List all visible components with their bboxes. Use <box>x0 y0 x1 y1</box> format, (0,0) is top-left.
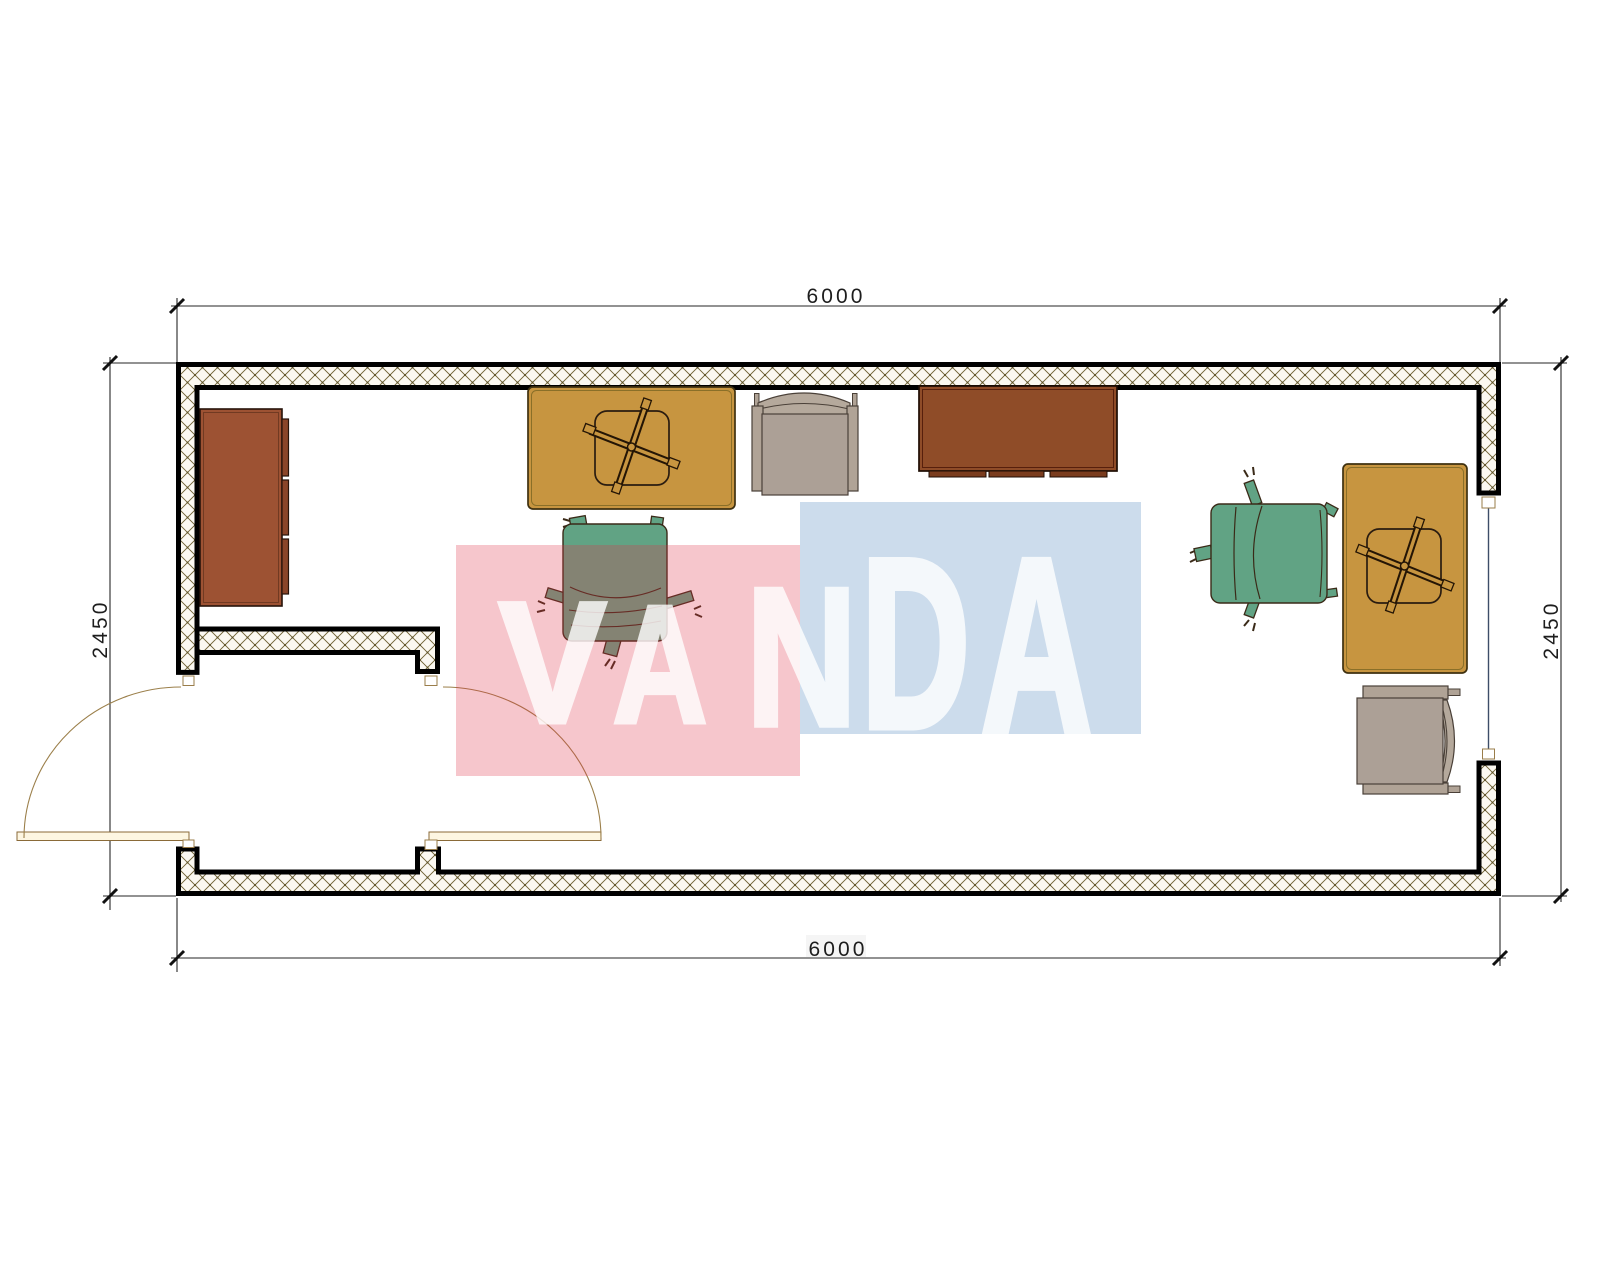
svg-text:N: N <box>746 547 857 767</box>
svg-text:A: A <box>613 572 707 758</box>
svg-text:A: A <box>981 506 1092 784</box>
svg-text:2450: 2450 <box>1540 600 1563 659</box>
svg-text:6000: 6000 <box>808 938 867 961</box>
svg-text:D: D <box>861 509 970 779</box>
svg-text:6000: 6000 <box>806 285 865 308</box>
svg-text:2450: 2450 <box>89 599 112 658</box>
svg-text:V: V <box>499 567 606 759</box>
